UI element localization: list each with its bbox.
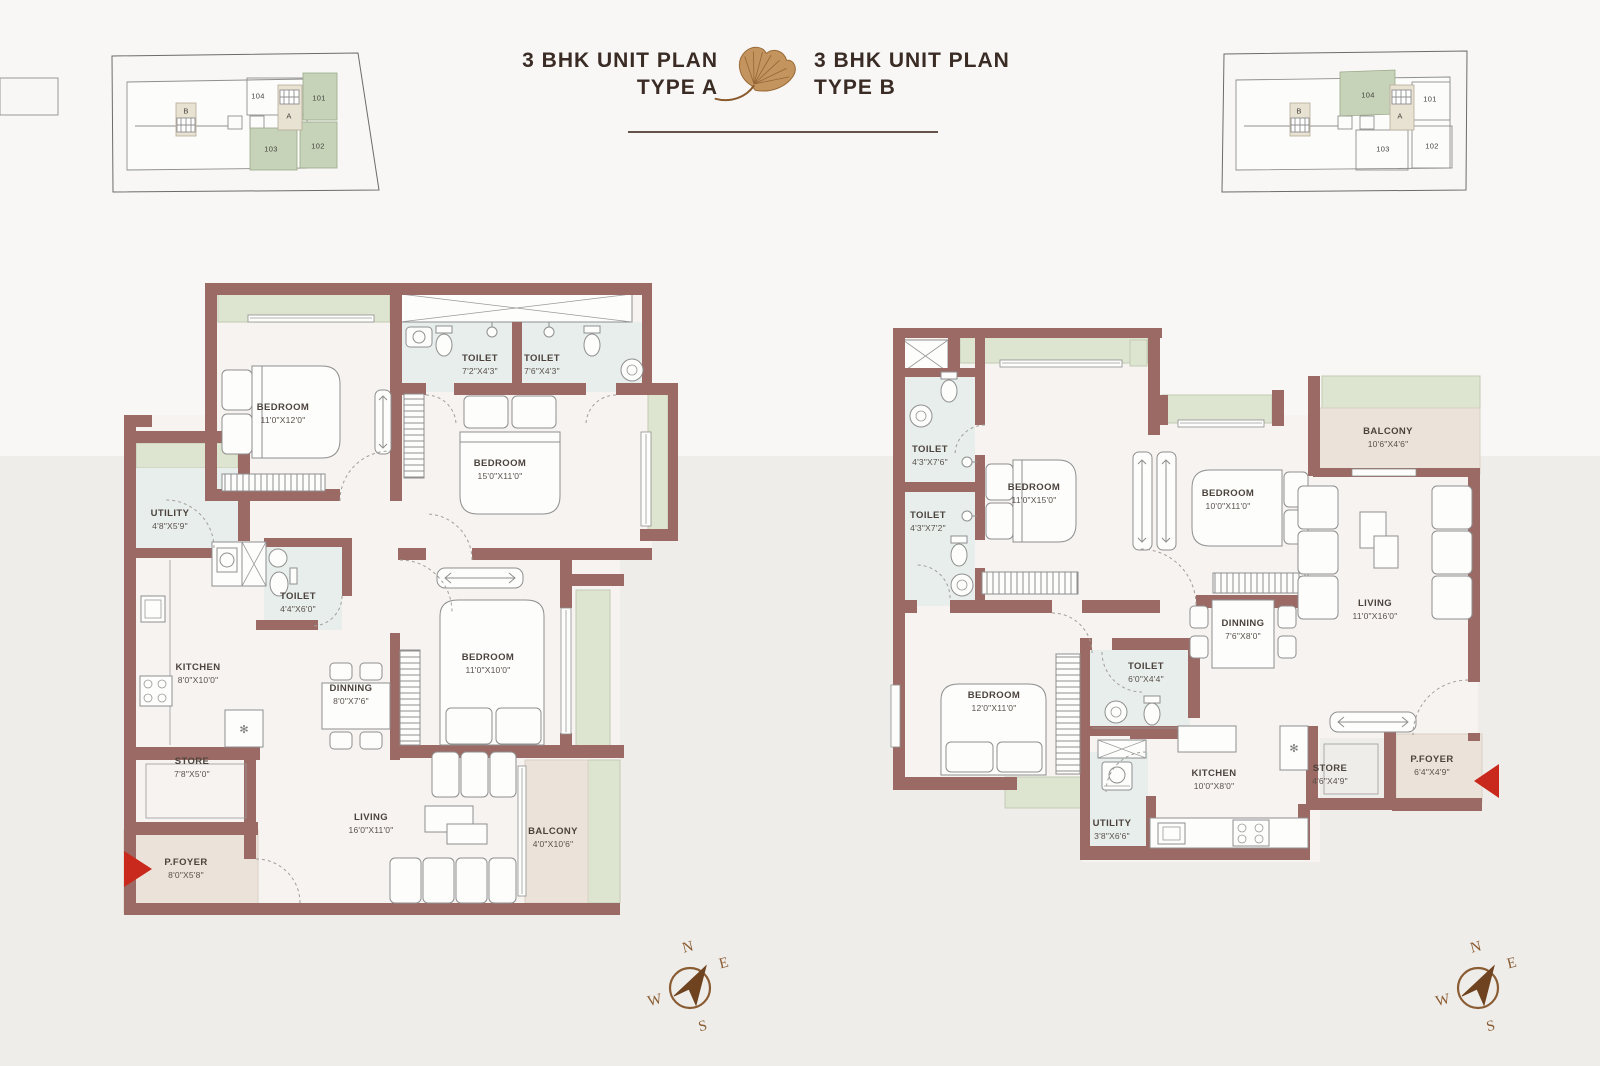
svg-text:✻: ✻ (239, 724, 248, 736)
title-b-line2: TYPE B (814, 74, 1010, 101)
key-left-unit-101: 101 (312, 94, 325, 103)
key-left-unit-104: 104 (251, 92, 264, 101)
room-label-b-bedroom-2: BEDROOM 10'0"X11'0" (1202, 487, 1254, 513)
room-label-a-toilet-3: TOILET 4'4"X6'0" (280, 590, 316, 616)
key-right-unit-104: 104 (1361, 91, 1374, 100)
key-right-unit-a: A (1397, 112, 1402, 121)
title-type-b: 3 BHK UNIT PLAN TYPE B (814, 47, 1010, 101)
key-left-unit-a: A (286, 112, 291, 121)
room-label-b-store: STORE 4'6"X4'9" (1312, 762, 1348, 788)
title-type-a: 3 BHK UNIT PLAN TYPE A (522, 47, 718, 101)
room-label-b-bedroom-3: BEDROOM 12'0"X11'0" (968, 689, 1020, 715)
room-label-a-pfoyer: P.FOYER 8'0"X5'8" (164, 856, 207, 882)
key-right-unit-101: 101 (1423, 95, 1436, 104)
room-label-a-utility: UTILITY 4'8"X5'9" (151, 507, 190, 533)
room-label-a-balcony: BALCONY 4'0"X10'6" (528, 825, 578, 851)
bench-foyer-b (1330, 712, 1416, 732)
room-label-a-bedroom-3: BEDROOM 11'0"X10'0" (462, 651, 514, 677)
room-label-b-living: LIVING 11'0"X16'0" (1353, 597, 1398, 623)
room-label-b-toilet-1: TOILET 4'3"X7'6" (912, 443, 948, 469)
room-label-a-living: LIVING 16'0"X11'0" (349, 811, 394, 837)
room-label-a-kitchen: KITCHEN 8'0"X10'0" (175, 661, 220, 687)
key-right-unit-b: B (1296, 107, 1301, 116)
title-a-line2: TYPE A (522, 74, 718, 101)
title-a-line1: 3 BHK UNIT PLAN (522, 47, 718, 74)
key-left-unit-b: B (183, 107, 188, 116)
header-divider (628, 131, 938, 133)
key-right-unit-102: 102 (1425, 142, 1438, 151)
floorplan-sheet: ✻ (0, 0, 1600, 1066)
title-b-line1: 3 BHK UNIT PLAN (814, 47, 1010, 74)
room-label-b-balcony: BALCONY 10'6"X4'6" (1363, 425, 1413, 451)
key-left-unit-102: 102 (311, 142, 324, 151)
room-label-b-dinning: DINNING 7'6"X8'0" (1222, 617, 1265, 643)
room-label-b-utility: UTILITY 3'8"X6'6" (1093, 817, 1132, 843)
room-label-b-bedroom-1: BEDROOM 11'0"X15'0" (1008, 481, 1060, 507)
key-left-unit-103: 103 (264, 145, 277, 154)
room-label-a-dinning: DINNING 8'0"X7'6" (330, 682, 373, 708)
plan-a: ✻ (124, 283, 678, 915)
room-label-a-store: STORE 7'8"X5'0" (174, 755, 210, 781)
svg-text:✻: ✻ (1289, 743, 1298, 755)
room-label-a-bedroom-1: BEDROOM 11'0"X12'0" (257, 401, 309, 427)
room-label-b-toilet-2: TOILET 4'3"X7'2" (910, 509, 946, 535)
room-label-a-toilet-1: TOILET 7'2"X4'3" (462, 352, 498, 378)
room-label-a-bedroom-2: BEDROOM 15'0"X11'0" (474, 457, 526, 483)
room-label-b-pfoyer: P.FOYER 6'4"X4'9" (1410, 753, 1453, 779)
room-label-b-toilet-3: TOILET 6'0"X4'4" (1128, 660, 1164, 686)
floorplan-drawing: ✻ (0, 0, 1600, 1066)
room-label-a-toilet-2: TOILET 7'6"X4'3" (524, 352, 560, 378)
key-right-unit-103: 103 (1376, 145, 1389, 154)
room-label-b-kitchen: KITCHEN 10'0"X8'0" (1191, 767, 1236, 793)
